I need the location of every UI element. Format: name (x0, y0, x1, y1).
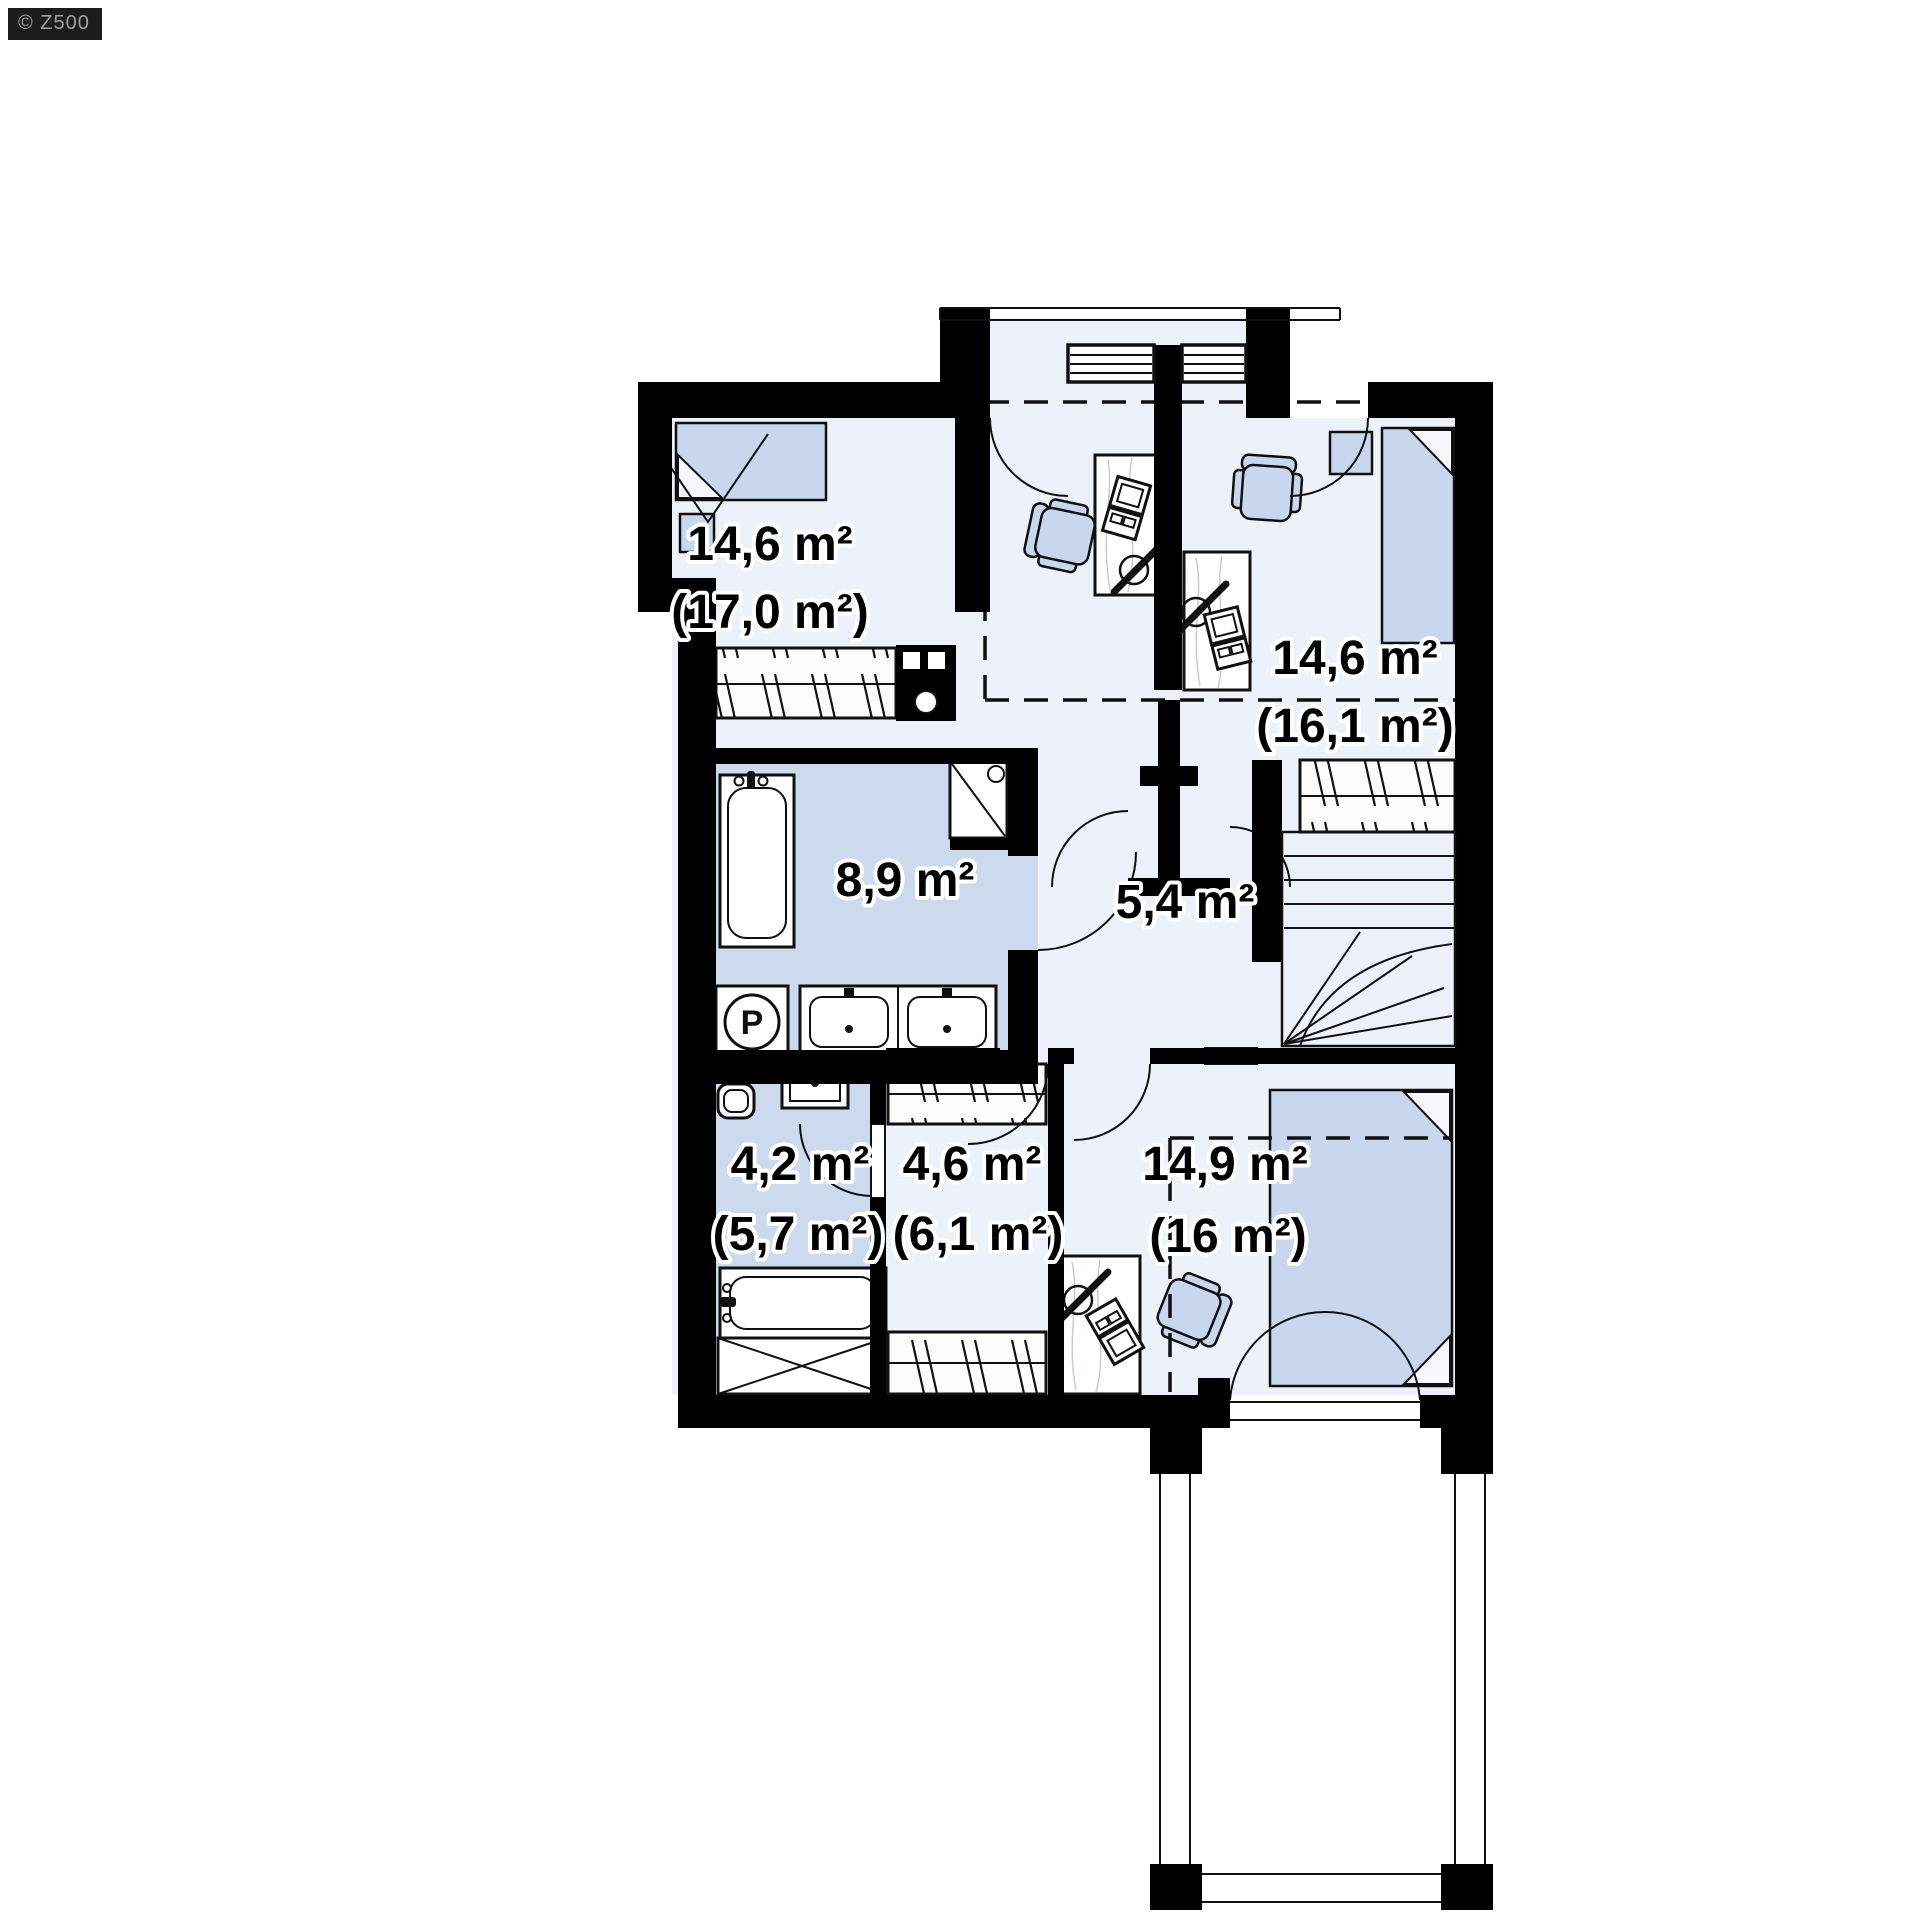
shelf-unit (896, 645, 956, 721)
room-label-gross: (16,1 m²) (1256, 700, 1453, 753)
bathtub (720, 771, 794, 947)
room-label-gross: (16 m²) (1149, 1210, 1306, 1263)
room-label: 5,4 m² (1116, 876, 1255, 929)
desk (1058, 1256, 1144, 1394)
wardrobe-cabinet (1300, 760, 1455, 832)
room-label: 14,6 m² (687, 518, 852, 571)
office-chair (1231, 454, 1303, 523)
wardrobe-cabinet (716, 648, 896, 718)
floor-plan-drawing: P (0, 0, 1920, 1920)
room-label-gross: (5,7 m²) (713, 1208, 884, 1261)
bed (1382, 428, 1454, 643)
balcony (1150, 1428, 1493, 1910)
room-label-gross: (17,0 m²) (671, 586, 868, 639)
bed (676, 423, 826, 500)
shower-tray (718, 1338, 886, 1394)
wardrobe-cabinet (888, 1332, 1046, 1394)
room-label-gross: (6,1 m²) (893, 1208, 1064, 1261)
window (1068, 345, 1154, 382)
double-washbasin (800, 986, 996, 1058)
washing-machine: P (716, 986, 788, 1058)
bathtub (720, 1268, 886, 1338)
floor-plan-page: © Z500 (0, 0, 1920, 1920)
desk (1095, 455, 1164, 595)
shower (950, 762, 1007, 838)
room-label: 4,6 m² (903, 1138, 1042, 1191)
washing-machine-symbol: P (741, 1004, 764, 1042)
room-label: 14,6 m² (1272, 632, 1437, 685)
room-label: 4,2 m² (731, 1138, 870, 1191)
room-label: 8,9 m² (836, 854, 975, 907)
room-label: 14,9 m² (1142, 1138, 1307, 1191)
balcony-railing (1160, 1474, 1485, 1902)
door-leaf (871, 1124, 885, 1198)
window (1182, 345, 1246, 382)
desk (1176, 552, 1251, 690)
